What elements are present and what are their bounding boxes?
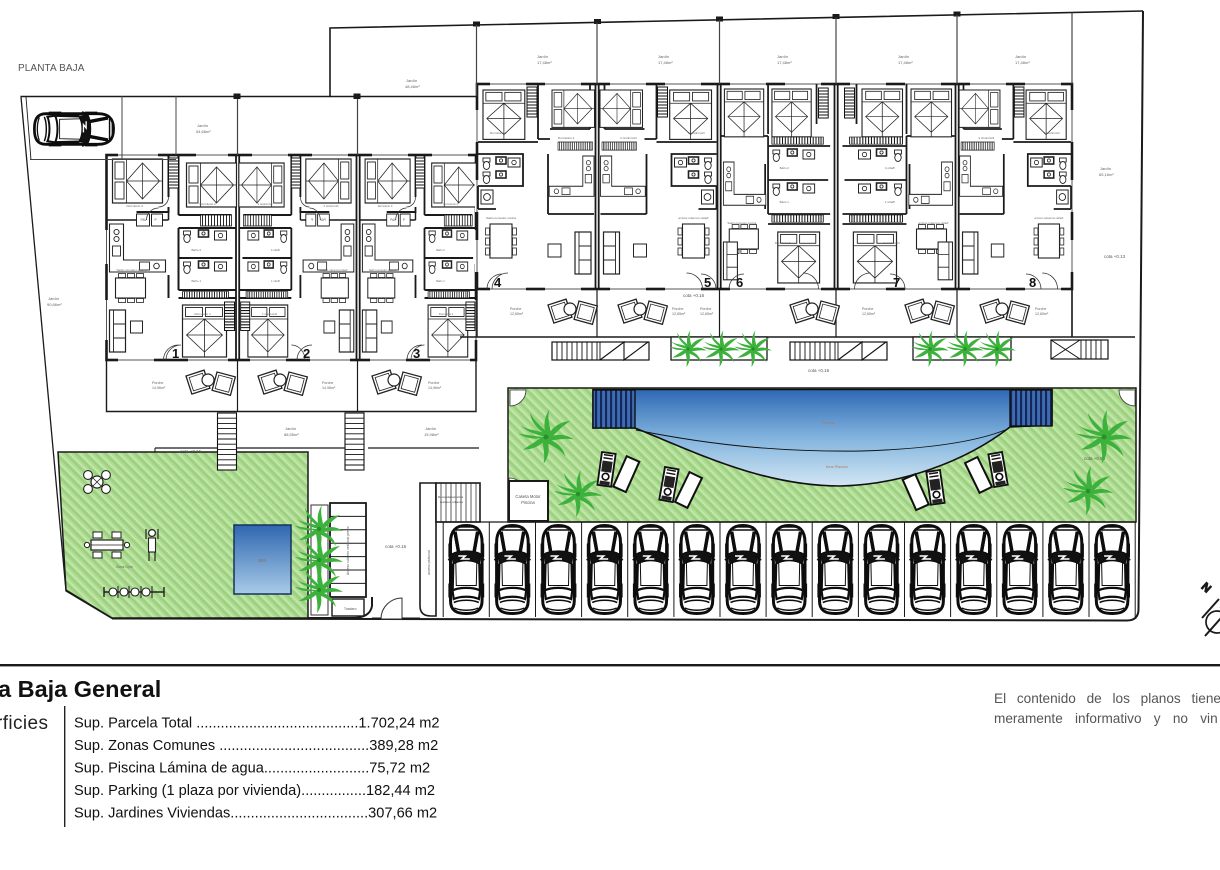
svg-text:Jardín: Jardín xyxy=(537,54,548,59)
svg-text:Sup. Piscina Lámina de agua...: Sup. Piscina Lámina de agua.............… xyxy=(74,761,430,777)
svg-text:rficies: rficies xyxy=(0,713,48,734)
svg-text:Jardín: Jardín xyxy=(898,54,909,59)
svg-text:17,48m²: 17,48m² xyxy=(898,60,913,65)
svg-text:Porche: Porche xyxy=(862,307,873,311)
svg-text:12,65m²: 12,65m² xyxy=(510,312,524,316)
svg-text:Jardín: Jardín xyxy=(406,78,417,83)
svg-text:Jardín: Jardín xyxy=(1015,54,1026,59)
svg-text:cota +0.13: cota +0.13 xyxy=(1104,254,1126,259)
svg-text:Porche: Porche xyxy=(672,307,683,311)
svg-text:acceso peatonal: acceso peatonal xyxy=(427,550,431,575)
svg-text:6: 6 xyxy=(736,275,743,290)
svg-text:cota +0.16: cota +0.16 xyxy=(385,544,407,549)
svg-text:4: 4 xyxy=(494,275,502,290)
svg-text:cota +0.16: cota +0.16 xyxy=(180,449,202,454)
svg-text:17,48m²: 17,48m² xyxy=(537,60,552,65)
svg-text:12,65m²: 12,65m² xyxy=(862,312,876,316)
svg-text:14,96m²: 14,96m² xyxy=(152,386,166,390)
svg-text:17,48m²: 17,48m² xyxy=(658,60,673,65)
svg-text:Porche: Porche xyxy=(510,307,521,311)
svg-text:Jardín: Jardín xyxy=(425,426,436,431)
svg-text:Caseta Motor: Caseta Motor xyxy=(515,494,541,499)
svg-text:Jardín: Jardín xyxy=(285,426,296,431)
svg-text:Sup. Zonas Comunes ...........: Sup. Zonas Comunes .....................… xyxy=(74,738,438,754)
svg-text:PLANTA BAJA: PLANTA BAJA xyxy=(18,63,85,74)
svg-text:Porche: Porche xyxy=(428,381,439,385)
svg-text:fons Piscina: fons Piscina xyxy=(826,464,848,469)
svg-text:90,66m²: 90,66m² xyxy=(47,302,62,307)
svg-text:48,46m²: 48,46m² xyxy=(405,84,420,89)
svg-text:Porche: Porche xyxy=(322,381,333,385)
svg-text:Jardín: Jardín xyxy=(1100,166,1111,171)
svg-text:54,66m²: 54,66m² xyxy=(196,129,211,134)
svg-text:Jardín: Jardín xyxy=(48,296,59,301)
svg-text:65,16m²: 65,16m² xyxy=(1099,172,1114,177)
svg-text:Jardín: Jardín xyxy=(777,54,788,59)
svg-text:15,98m²: 15,98m² xyxy=(424,432,439,437)
svg-text:a Baja General: a Baja General xyxy=(0,676,161,702)
svg-text:SPA: SPA xyxy=(258,558,266,563)
svg-text:7: 7 xyxy=(893,275,900,290)
svg-text:Porche: Porche xyxy=(1035,307,1046,311)
svg-text:14,96m²: 14,96m² xyxy=(428,386,442,390)
svg-text:88,55m²: 88,55m² xyxy=(284,432,299,437)
svg-text:17,48m²: 17,48m² xyxy=(777,60,792,65)
svg-text:8: 8 xyxy=(1029,275,1036,290)
svg-text:cota +0.16: cota +0.16 xyxy=(683,293,705,298)
svg-text:12,65m²: 12,65m² xyxy=(1035,312,1049,316)
svg-text:Recogida selectiva: Recogida selectiva xyxy=(438,495,464,499)
svg-text:Porche: Porche xyxy=(152,381,163,385)
svg-text:Sup. Jardines Viviendas.......: Sup. Jardines Viviendas.................… xyxy=(74,806,437,822)
svg-text:12,65m²: 12,65m² xyxy=(672,312,686,316)
svg-text:meramente informativo y no vin: meramente informativo y no vin xyxy=(994,711,1218,726)
svg-text:3: 3 xyxy=(413,346,420,361)
svg-text:Piscina: Piscina xyxy=(521,500,535,505)
svg-text:Acceso cubierto vestibulo prev: Acceso cubierto vestibulo previo xyxy=(346,526,350,575)
svg-text:5: 5 xyxy=(704,275,711,290)
svg-text:residuos urbanos: residuos urbanos xyxy=(440,500,464,504)
svg-text:Trastero: Trastero xyxy=(344,607,357,611)
svg-text:12,65m²: 12,65m² xyxy=(700,312,714,316)
svg-text:cota +0.16: cota +0.16 xyxy=(808,368,830,373)
svg-text:14,96m²: 14,96m² xyxy=(322,386,336,390)
svg-text:Jardín: Jardín xyxy=(658,54,669,59)
svg-text:Jardín: Jardín xyxy=(197,123,208,128)
svg-text:Sup. Parking (1 plaza por vivi: Sup. Parking (1 plaza por vivienda).....… xyxy=(74,783,435,799)
svg-text:Porche: Porche xyxy=(700,307,711,311)
svg-text:El contenido de los planos tie: El contenido de los planos tiene xyxy=(994,691,1220,706)
svg-text:17,48m²: 17,48m² xyxy=(1015,60,1030,65)
svg-text:Piscina: Piscina xyxy=(822,420,836,425)
svg-text:2: 2 xyxy=(303,346,310,361)
svg-text:1: 1 xyxy=(172,346,179,361)
svg-text:Sup. Parcela Total ...........: Sup. Parcela Total .....................… xyxy=(74,716,440,732)
svg-text:Zona Gym: Zona Gym xyxy=(116,565,133,569)
